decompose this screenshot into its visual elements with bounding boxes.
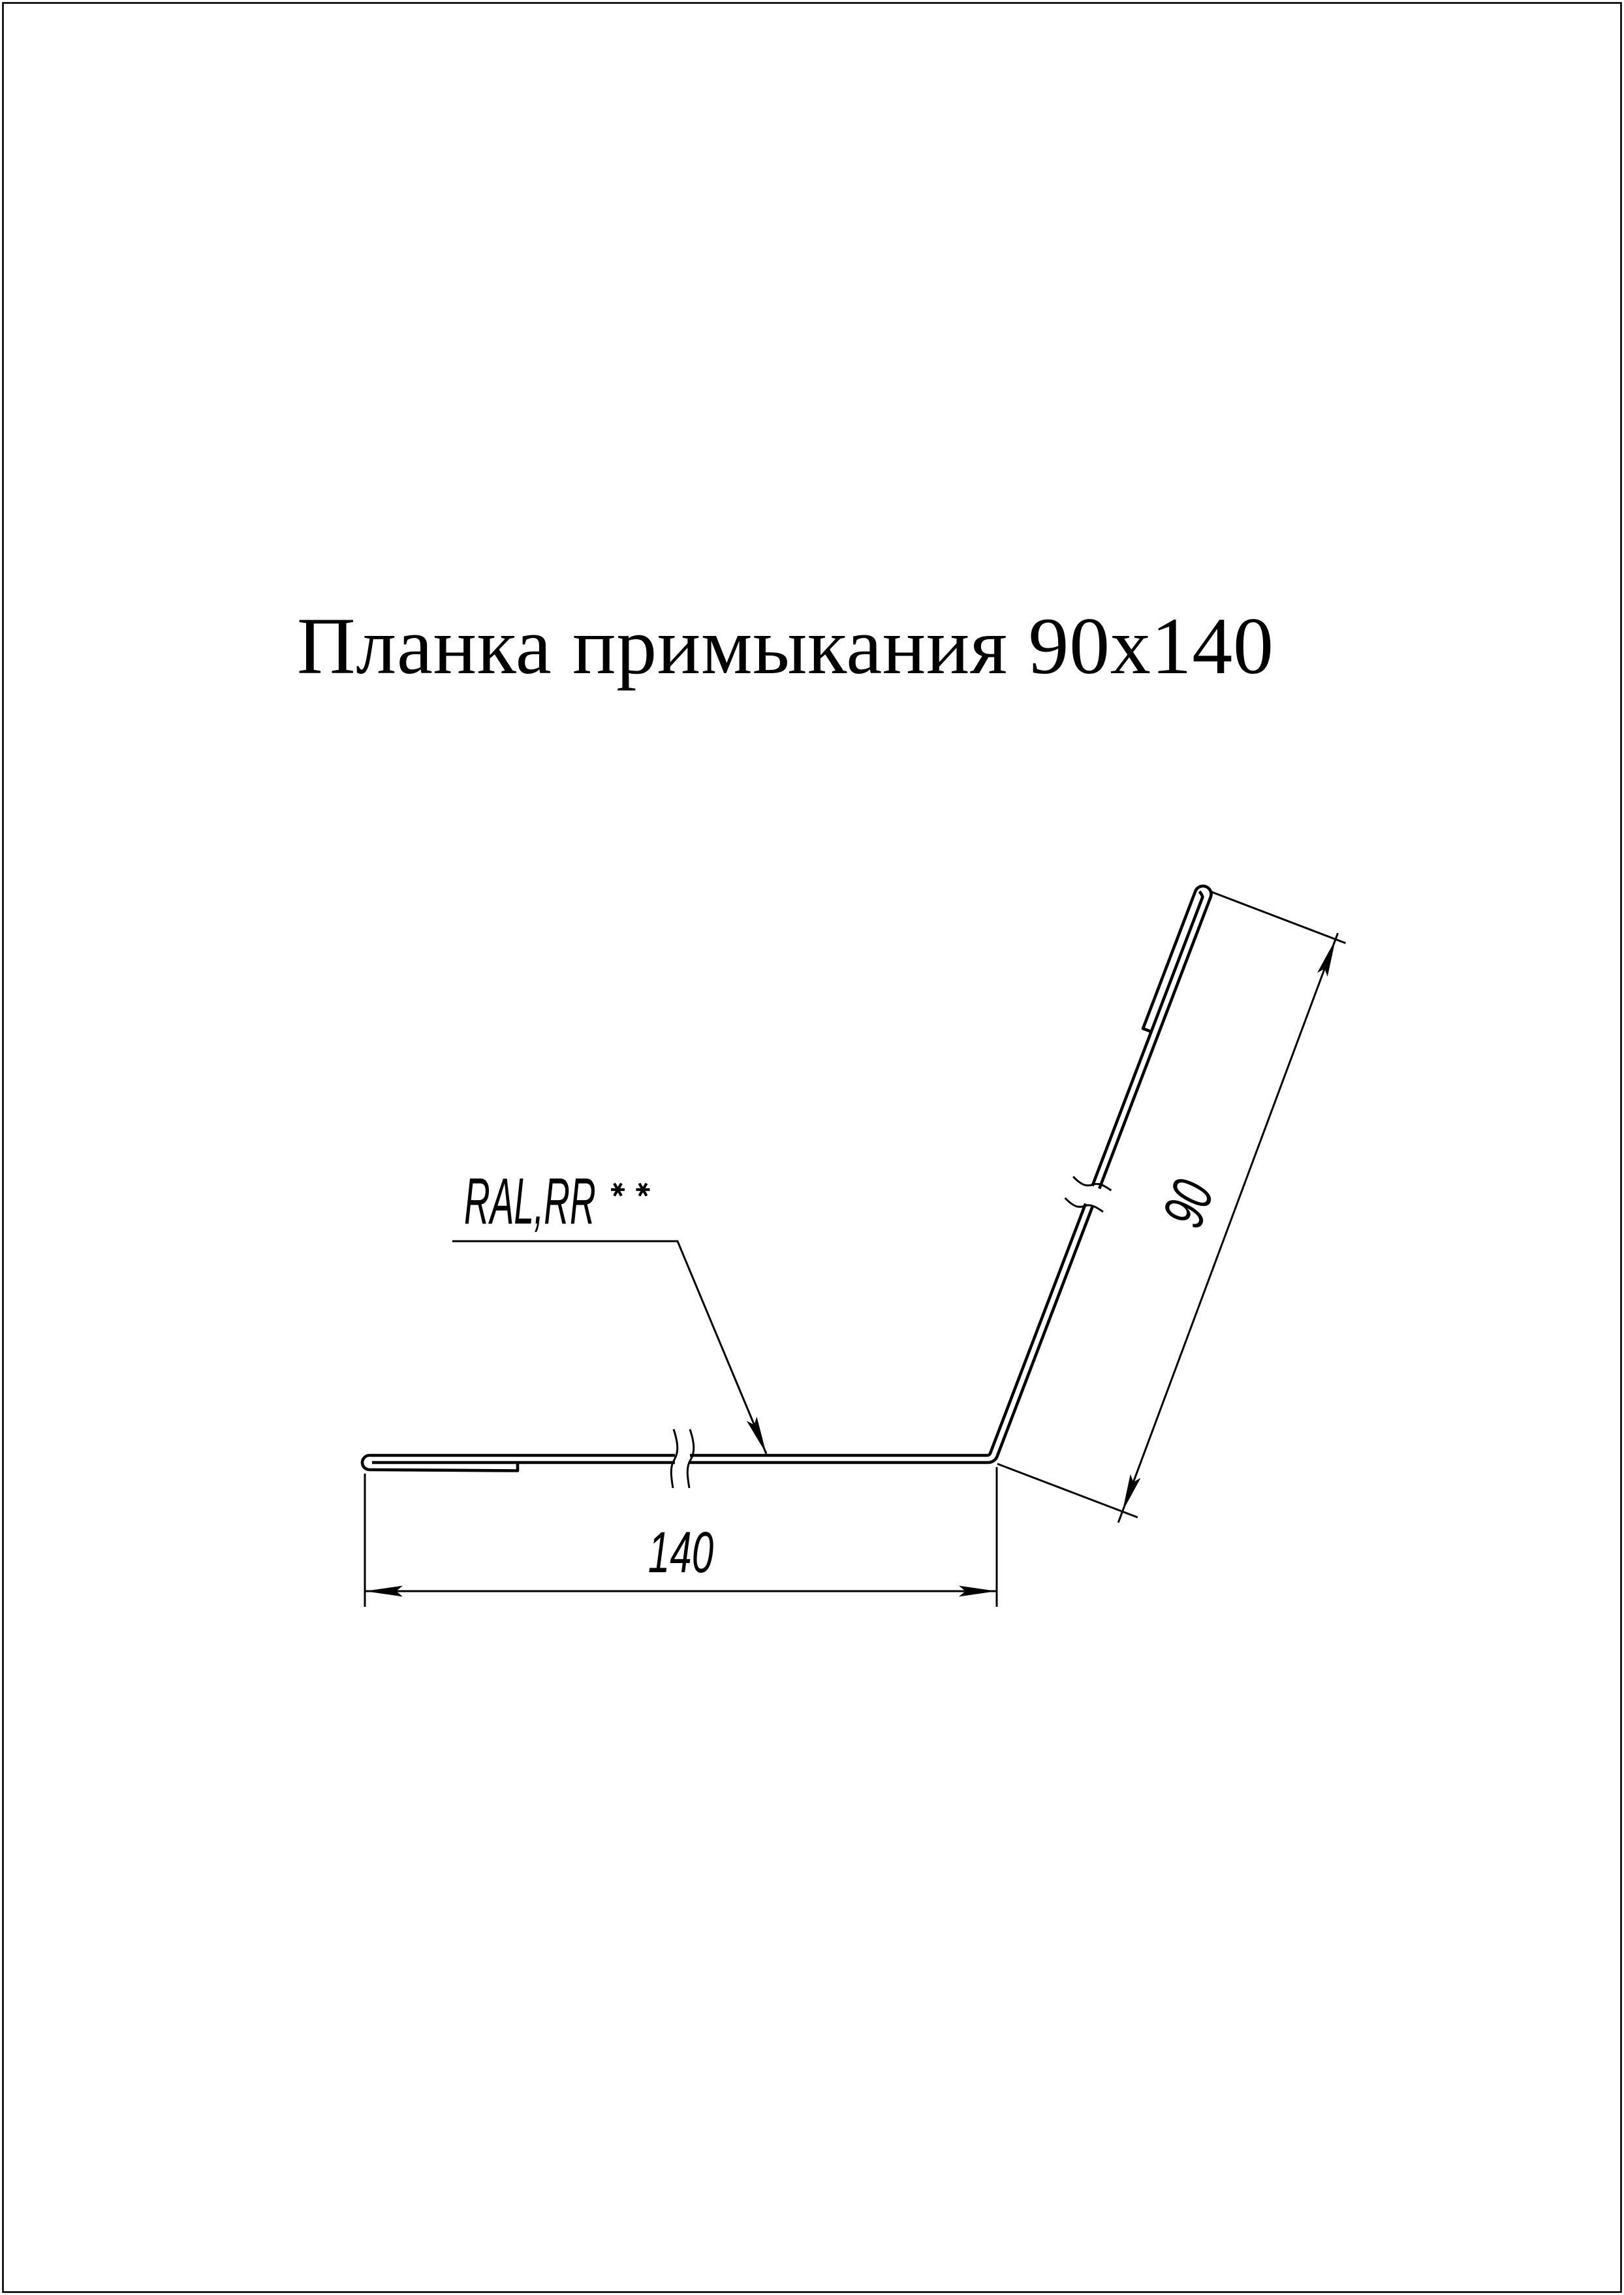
svg-text:RAL,RR: RAL,RR (464, 1165, 596, 1239)
svg-text:140: 140 (648, 1520, 713, 1585)
svg-text:Планка примыкания 90х140: Планка примыкания 90х140 (297, 601, 1274, 691)
